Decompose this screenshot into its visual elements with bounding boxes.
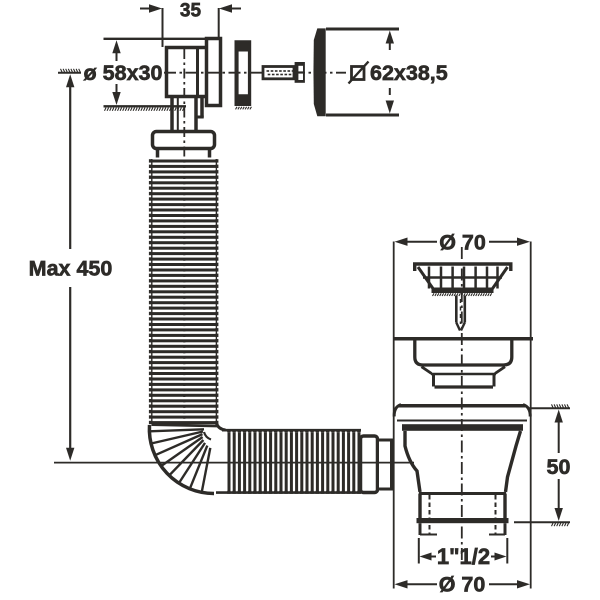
- svg-text:62x38,5: 62x38,5: [370, 61, 448, 85]
- svg-text:1"1/2: 1"1/2: [437, 544, 490, 569]
- svg-text:35: 35: [180, 1, 202, 22]
- svg-text:ø 58x30: ø 58x30: [84, 61, 163, 85]
- svg-text:Max 450: Max 450: [29, 257, 113, 281]
- svg-text:50: 50: [547, 455, 571, 479]
- svg-text:Ø 70: Ø 70: [439, 573, 486, 597]
